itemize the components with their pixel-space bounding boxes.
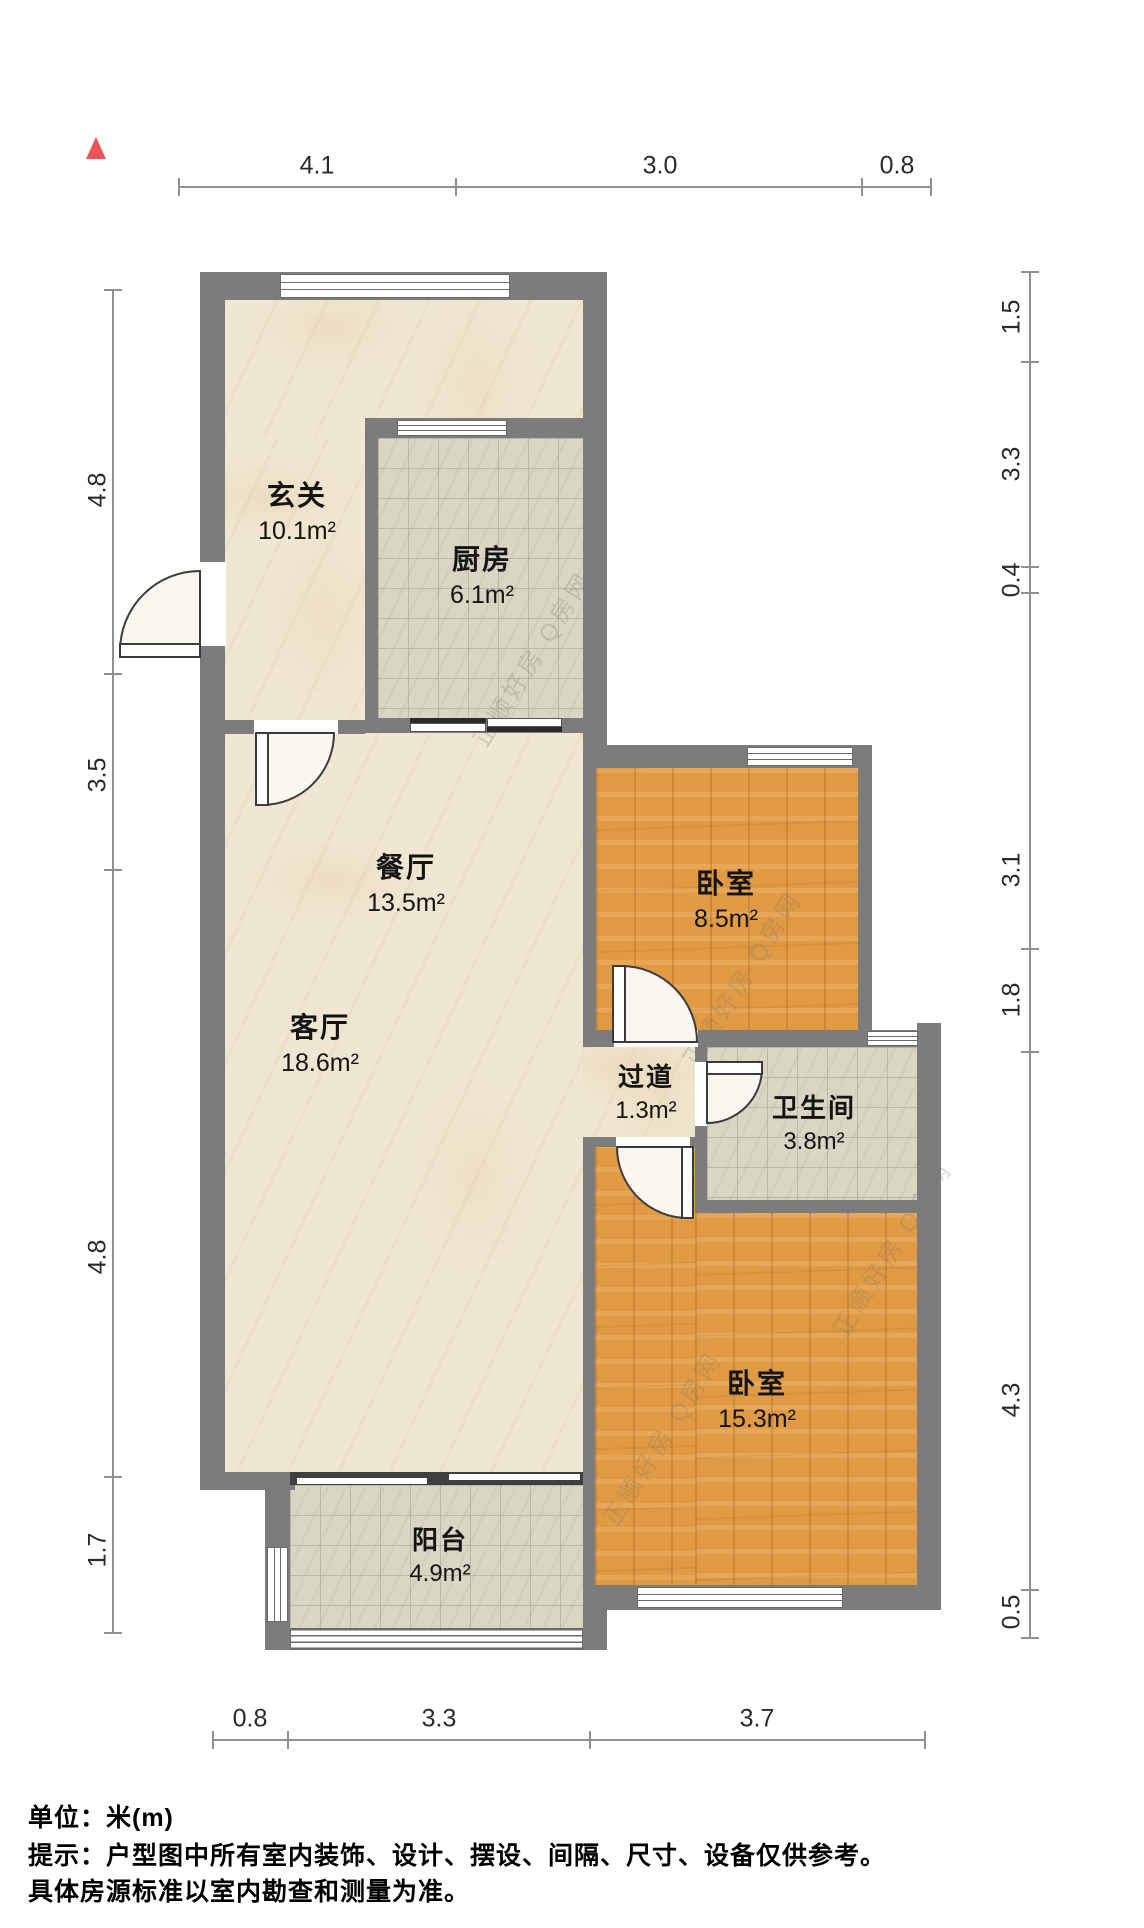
dim-value: 4.8 [84, 1240, 113, 1275]
dim-tick [1021, 1051, 1039, 1053]
dim-tick [1021, 948, 1039, 950]
dim-tick [104, 869, 122, 871]
window [637, 1587, 843, 1608]
room-bedroom2-floor [595, 1143, 695, 1585]
dim-value: 4.3 [998, 1383, 1027, 1418]
dim-tick [212, 1731, 214, 1749]
wall [858, 745, 872, 1047]
dim-tick [1021, 271, 1039, 273]
dim-value: 3.1 [998, 853, 1027, 888]
window [397, 420, 507, 436]
wall [917, 1023, 941, 1610]
dim-line-right [1029, 272, 1031, 1638]
room-label-living: 客厅 18.6m² [281, 1006, 359, 1078]
dim-tick [178, 178, 180, 196]
dim-tick [104, 1476, 122, 1478]
dim-tick [1021, 1589, 1039, 1591]
dim-tick [589, 1731, 591, 1749]
entry-door-opening [199, 562, 226, 646]
wall [200, 1472, 295, 1490]
dim-tick [930, 178, 932, 196]
kitchen-sliding-door-panel [487, 718, 562, 727]
dim-value: 0.8 [880, 152, 915, 181]
wall [583, 1137, 595, 1610]
door-opening [616, 1137, 690, 1147]
door-opening [254, 720, 338, 734]
door-opening [695, 1062, 707, 1126]
dim-tick [1021, 361, 1039, 363]
dim-value: 0.8 [233, 1705, 268, 1734]
dim-value: 3.3 [422, 1705, 457, 1734]
dim-value: 4.1 [300, 152, 335, 181]
dim-value: 4.8 [84, 473, 113, 508]
dim-value: 3.7 [740, 1705, 775, 1734]
wall [365, 418, 378, 733]
dim-value: 0.4 [998, 563, 1027, 598]
dim-value: 1.7 [84, 1533, 113, 1568]
balcony-sliding-door-panel [296, 1477, 428, 1485]
dim-tick [455, 178, 457, 196]
room-label-entry: 玄关 10.1m² [258, 474, 336, 546]
disclaimer-line-1: 提示：户型图中所有室内装饰、设计、摆设、间隔、尺寸、设备仅供参考。 [28, 1836, 886, 1872]
window [747, 747, 853, 766]
room-label-kitchen: 厨房 6.1m² [450, 538, 514, 610]
dim-tick [1021, 1637, 1039, 1639]
wall [583, 1610, 607, 1650]
wall [695, 1200, 941, 1213]
dim-tick [287, 1731, 289, 1749]
wall [200, 272, 225, 1490]
dim-tick [104, 1632, 122, 1634]
dim-line-bottom [213, 1739, 925, 1741]
room-label-bathroom: 卫生间 3.8m² [772, 1088, 856, 1156]
balcony-side-window [267, 1547, 288, 1622]
door-opening [614, 1030, 698, 1047]
dim-tick [104, 673, 122, 675]
wall [583, 745, 596, 1047]
kitchen-sliding-door-panel [410, 723, 486, 732]
room-label-dining: 餐厅 13.5m² [367, 846, 445, 918]
dim-tick [104, 289, 122, 291]
window [867, 1031, 918, 1046]
floorplan-canvas: 正顺好房 Q房网 正顺好房 Q房网 正顺好房 Q房网 正顺好房 Q房网 [0, 0, 1144, 1928]
dim-value: 3.3 [998, 447, 1027, 482]
disclaimer-line-2: 具体房源标准以室内勘查和测量为准。 [28, 1872, 470, 1908]
north-arrow-icon [86, 137, 106, 159]
wall [583, 272, 607, 745]
units-note: 单位：米(m) [28, 1798, 174, 1834]
dim-tick [924, 1731, 926, 1749]
room-label-bedroom1: 卧室 8.5m² [694, 862, 758, 934]
room-label-balcony: 阳台 4.9m² [409, 1520, 470, 1588]
dim-tick [861, 178, 863, 196]
dim-value: 1.5 [998, 300, 1027, 335]
dim-value: 3.5 [84, 758, 113, 793]
room-label-hallway: 过道 1.3m² [615, 1057, 676, 1125]
balcony-sliding-door-panel [448, 1473, 581, 1481]
room-label-bedroom2: 卧室 15.3m² [718, 1362, 796, 1434]
dim-value: 1.8 [998, 983, 1027, 1018]
kitchen-sliding-door-rail [487, 727, 562, 732]
dim-value: 3.0 [643, 152, 678, 181]
room-dining-living-floor [225, 733, 583, 1472]
window [280, 274, 510, 298]
balcony-window [290, 1628, 583, 1650]
dim-value: 0.5 [998, 1595, 1027, 1630]
dim-line-top [179, 186, 932, 188]
